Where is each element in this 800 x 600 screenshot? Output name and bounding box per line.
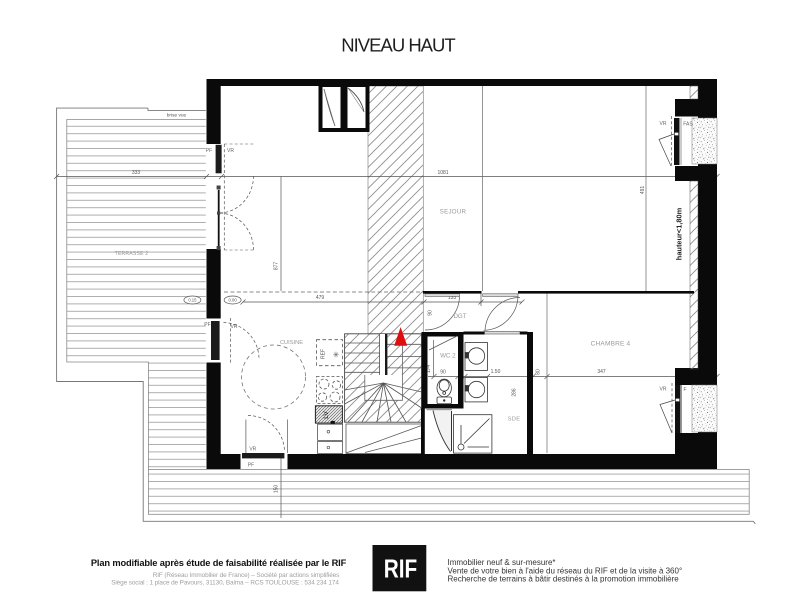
svg-text:✳: ✳ bbox=[333, 351, 340, 360]
svg-text:1081: 1081 bbox=[437, 170, 448, 176]
svg-text:RIF (Réseau Immobilier de Fran: RIF (Réseau Immobilier de France) – Soci… bbox=[153, 572, 340, 579]
svg-text:80: 80 bbox=[536, 369, 542, 375]
svg-text:FAS: FAS bbox=[683, 122, 693, 128]
svg-text:VR: VR bbox=[227, 148, 234, 154]
svg-text:491: 491 bbox=[640, 186, 646, 195]
svg-text:1.50: 1.50 bbox=[491, 369, 501, 375]
svg-text:PF: PF bbox=[206, 148, 212, 154]
svg-text:PF: PF bbox=[248, 463, 254, 469]
svg-text:PF: PF bbox=[204, 322, 210, 328]
svg-text:Siège social : 1 place de Pavo: Siège social : 1 place de Pavours, 31130… bbox=[111, 579, 339, 586]
svg-text:CHAMBRE 4: CHAMBRE 4 bbox=[591, 341, 631, 348]
svg-text:DGT: DGT bbox=[453, 313, 466, 320]
svg-text:90: 90 bbox=[428, 310, 434, 316]
svg-text:479: 479 bbox=[316, 295, 325, 301]
svg-text:150: 150 bbox=[274, 485, 280, 494]
svg-text:333: 333 bbox=[132, 170, 141, 176]
svg-text:SDE: SDE bbox=[508, 417, 521, 423]
svg-text:TERRASSE 2: TERRASSE 2 bbox=[115, 251, 149, 257]
svg-text:347: 347 bbox=[597, 369, 606, 375]
svg-text:0.15: 0.15 bbox=[188, 298, 197, 303]
svg-text:Plan modifiable après étude de: Plan modifiable après étude de faisabili… bbox=[91, 558, 347, 568]
svg-text:VR: VR bbox=[231, 324, 238, 330]
svg-text:LV: LV bbox=[323, 411, 330, 419]
svg-text:CUISINE: CUISINE bbox=[280, 340, 303, 346]
svg-text:WC 2: WC 2 bbox=[440, 353, 456, 360]
svg-text:VR: VR bbox=[660, 121, 667, 127]
svg-text:F: F bbox=[683, 387, 686, 393]
svg-text:0.00: 0.00 bbox=[229, 298, 238, 303]
svg-text:SEJOUR: SEJOUR bbox=[440, 209, 467, 216]
svg-text:286: 286 bbox=[512, 388, 518, 397]
svg-text:VR: VR bbox=[249, 447, 256, 453]
svg-text:VR: VR bbox=[660, 387, 667, 393]
svg-text:877: 877 bbox=[274, 262, 280, 271]
svg-text:NIVEAU HAUT: NIVEAU HAUT bbox=[341, 35, 455, 56]
svg-text:Recherche de terrains à bâtir: Recherche de terrains à bâtir destinés à… bbox=[448, 575, 680, 584]
svg-text:REF: REF bbox=[321, 349, 327, 359]
svg-text:hauteur<1,80m: hauteur<1,80m bbox=[675, 207, 684, 260]
svg-text:RIF: RIF bbox=[384, 554, 417, 583]
svg-text:90: 90 bbox=[440, 370, 446, 376]
svg-text:brise vue: brise vue bbox=[167, 113, 187, 119]
